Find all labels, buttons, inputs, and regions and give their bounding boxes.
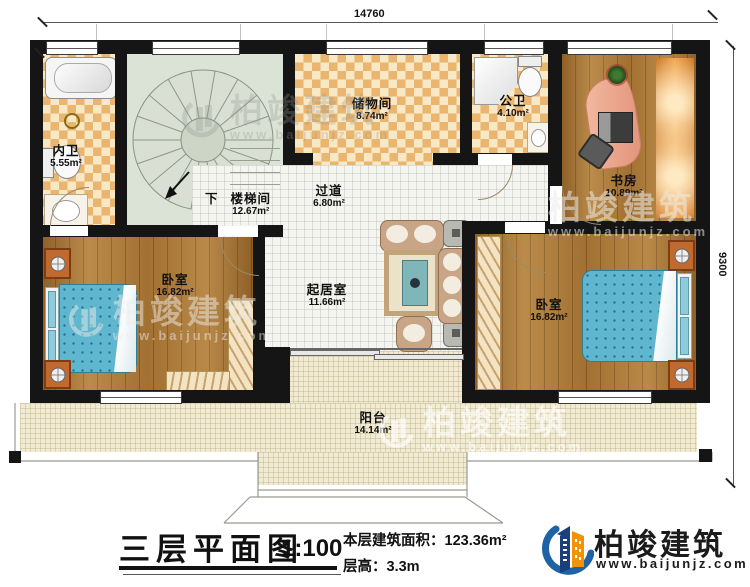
room-label-bedroom-left: 卧室 16.82m²: [156, 273, 193, 299]
stair-tread: [230, 184, 280, 185]
nightstand: [668, 360, 695, 390]
coffee-table: [402, 260, 428, 306]
door-opening-study: [550, 186, 562, 224]
room-label-living: 起居室 11.66m²: [307, 283, 348, 309]
wardrobe-left-bedroom: [228, 300, 254, 392]
nightstand-lamp: [50, 367, 65, 382]
sofa-pillow: [443, 299, 461, 317]
end-table-lamp: [452, 229, 460, 237]
room-name: 内卫: [50, 144, 82, 158]
plan-title: 三层平面图: [119, 524, 304, 569]
wall-bedroom-right-left: [462, 221, 475, 403]
study-wardrobe: [656, 58, 694, 218]
stair-tread: [230, 160, 280, 161]
floor-area-text: 本层建筑面积：123.36m²: [343, 529, 507, 550]
window-top-storage: [326, 41, 428, 55]
title-underline-thin: [123, 574, 341, 575]
opening-storage-room: [313, 153, 433, 165]
stair-tread: [230, 148, 280, 149]
sink-public: [527, 122, 549, 153]
door-opening-bedroom-right: [505, 222, 545, 233]
room-area: 4.10m²: [497, 108, 529, 120]
room-area: 8.74m²: [352, 111, 393, 123]
nightstand-lamp: [50, 256, 65, 271]
floor-height-text: 层高：3.3m: [343, 555, 420, 576]
extension-line: [484, 24, 485, 40]
room-name: 楼梯间: [231, 192, 272, 206]
room-area: 6.80m²: [313, 198, 345, 210]
room-area: 14.14m²: [354, 425, 391, 437]
dimension-line-top: [42, 22, 718, 23]
brand-site: www.baijunjz.com: [596, 556, 748, 571]
room-name: 过道: [313, 184, 345, 198]
stair-down-label: 下: [205, 192, 219, 206]
room-label-stairwell: 下 楼梯间 12.67m²: [205, 192, 271, 218]
room-area: 16.82m²: [530, 312, 567, 324]
headboard-panel: [680, 317, 689, 355]
room-name: 储物间: [352, 97, 393, 111]
sofa-group: [378, 218, 470, 352]
room-label-balcony: 阳台 14.14m²: [354, 411, 391, 437]
nightstand: [44, 248, 71, 279]
computer-monitor: [598, 112, 633, 143]
dimension-tick: [725, 40, 736, 51]
wardrobe-right-bedroom: [477, 236, 501, 390]
room-label-bedroom-right: 卧室 16.82m²: [530, 298, 567, 324]
wall-fixture: [64, 113, 80, 129]
dimension-tick: [707, 10, 718, 21]
toilet-tank-public: [518, 56, 542, 67]
room-area: 16.82m²: [156, 287, 193, 299]
room-label-corridor: 过道 6.80m²: [313, 184, 345, 210]
balcony-corner-post-left: [9, 451, 21, 463]
balcony-corner-post-right: [699, 449, 712, 462]
nightstand-lamp: [674, 368, 689, 383]
room-area: 12.67m²: [231, 206, 272, 218]
bed-right: [582, 270, 677, 362]
door-opening-bathroom: [478, 154, 512, 165]
door-opening-bedroom-left: [218, 226, 258, 236]
floorplan-canvas: 内卫 5.55m² 下 楼梯间 12.67m² 储物间 8.74m² 公卫 4.…: [0, 0, 750, 587]
room-area: 11.66m²: [307, 297, 348, 309]
room-label-study: 书房 10.89m²: [605, 174, 642, 200]
room-name: 起居室: [307, 283, 348, 297]
headboard-panel: [48, 291, 56, 328]
room-label-public-bathroom: 公卫 4.10m²: [497, 94, 529, 120]
bed-sheet: [652, 271, 676, 361]
nightstand-lamp: [674, 248, 689, 263]
bed-sheet: [114, 285, 136, 372]
window-bottom-bedroom-right: [558, 391, 652, 404]
potted-plant: [608, 66, 626, 84]
room-name: 书房: [605, 174, 642, 188]
end-table-lamp: [452, 329, 460, 337]
wall-exterior-left: [30, 40, 43, 403]
extension-line: [672, 24, 673, 40]
toilet-bowl-public: [518, 67, 542, 97]
extension-line: [240, 24, 241, 40]
dimension-line-right: [733, 46, 734, 486]
sofa-pillow: [443, 253, 461, 271]
bathtub-basin: [54, 63, 112, 93]
dresser-left-bedroom: [166, 371, 230, 392]
window-top-stairwell: [152, 41, 240, 55]
sofa-pillow: [386, 225, 408, 243]
sofa-pillow: [403, 324, 425, 342]
plan-scale: 1:100: [281, 535, 342, 563]
dimension-width-label: 14760: [354, 8, 385, 20]
room-area: 5.55m²: [50, 158, 82, 170]
room-name: 卧室: [156, 273, 193, 287]
room-name: 公卫: [497, 94, 529, 108]
bathtub: [45, 57, 117, 99]
room-label-ensuite: 内卫 5.55m²: [50, 144, 82, 170]
sofa-pillow: [414, 225, 436, 243]
room-name: 卧室: [530, 298, 567, 312]
nightstand: [44, 360, 71, 389]
room-area: 10.89m²: [605, 188, 642, 200]
window-top-bathroom: [484, 41, 544, 55]
bed-headboard: [677, 273, 692, 359]
stair-tread: [230, 172, 280, 173]
headboard-panel: [680, 277, 689, 315]
nightstand: [668, 240, 695, 271]
window-top-study: [567, 41, 672, 55]
wall-ensuite-right: [115, 40, 127, 237]
sink-basin: [531, 129, 546, 147]
extension-line: [96, 24, 97, 40]
window-bottom-bedroom-left: [100, 391, 182, 404]
wall-storage-bath-divider: [460, 40, 472, 165]
bed-headboard: [45, 287, 59, 371]
extension-line: [326, 24, 327, 40]
room-name: 阳台: [354, 411, 391, 425]
sofa-pillow: [443, 276, 461, 294]
sofa-chaise: [396, 316, 432, 352]
sliding-door-leaf: [290, 350, 380, 356]
room-label-storage: 储物间 8.74m²: [352, 97, 393, 123]
window-top-ensuite: [46, 41, 98, 55]
title-underline: [119, 566, 337, 570]
sliding-door-leaf: [374, 354, 464, 360]
sofa-back-seats: [380, 220, 444, 252]
wall-storage-left: [283, 40, 295, 165]
brand-logo-icon: [540, 517, 594, 581]
dimension-height-label: 9300: [716, 252, 728, 276]
table-decor: [410, 278, 420, 288]
door-opening-ensuite: [50, 226, 88, 236]
